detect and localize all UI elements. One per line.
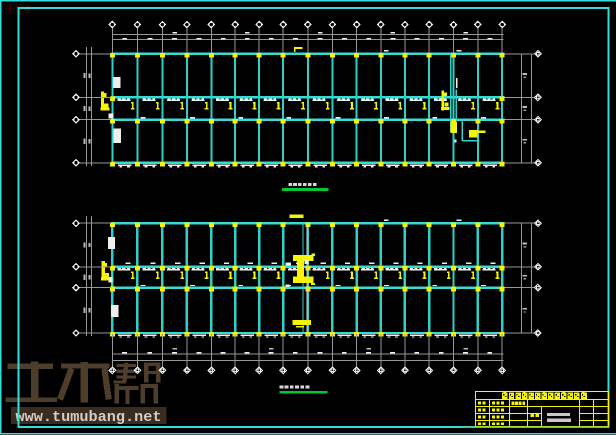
svg-text:www.tumubang.net: www.tumubang.net xyxy=(16,408,162,426)
